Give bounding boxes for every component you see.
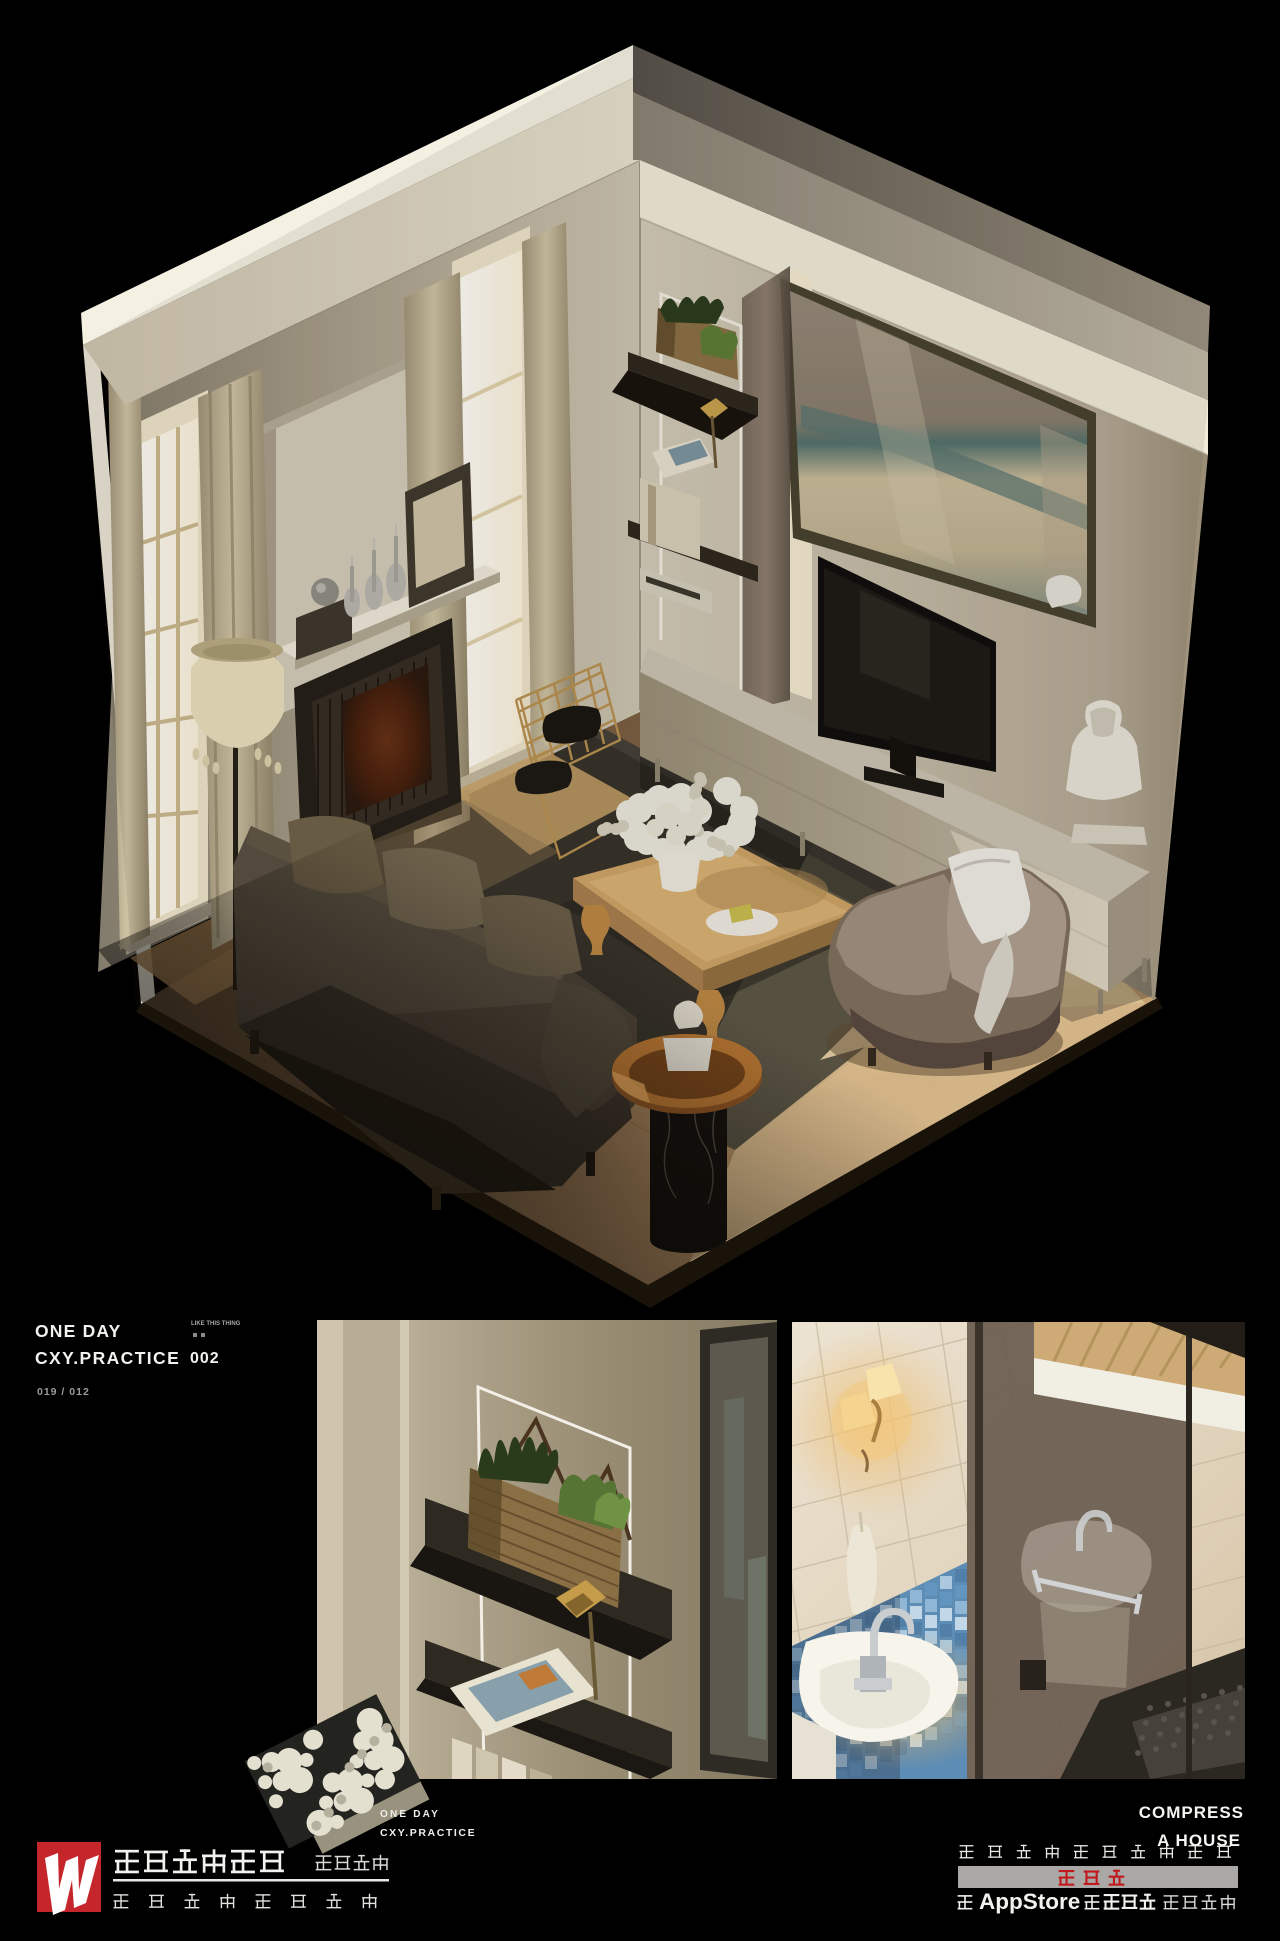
svg-text:AppStore: AppStore <box>979 1889 1080 1914</box>
svg-text:ONE DAY: ONE DAY <box>380 1809 440 1820</box>
svg-text:LIKE THIS THING: LIKE THIS THING <box>191 1321 241 1327</box>
svg-text:CXY.PRACTICE: CXY.PRACTICE <box>380 1827 476 1839</box>
svg-text:019 / 012: 019 / 012 <box>37 1386 90 1398</box>
svg-text:COMPRESS: COMPRESS <box>1139 1803 1244 1822</box>
svg-text:002: 002 <box>190 1350 220 1367</box>
svg-text:ONE DAY: ONE DAY <box>35 1321 122 1341</box>
svg-text:CXY.PRACTICE: CXY.PRACTICE <box>35 1348 180 1368</box>
